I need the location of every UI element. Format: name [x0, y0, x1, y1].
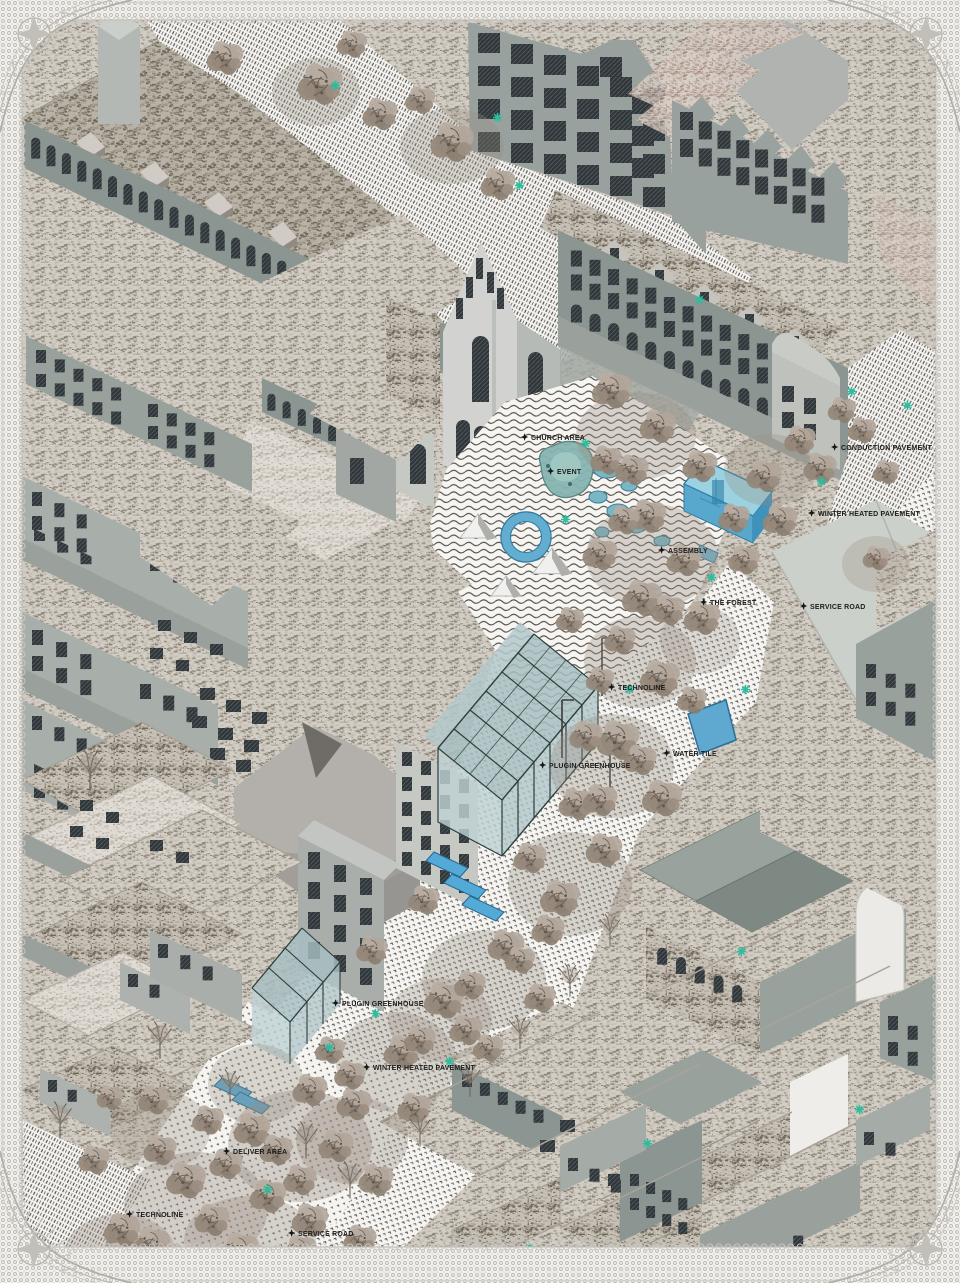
- svg-text:TECHNOLINE: TECHNOLINE: [618, 685, 666, 692]
- svg-text:WINTER HEATED PAVEMENT: WINTER HEATED PAVEMENT: [818, 511, 921, 518]
- svg-text:CHURCH AREA: CHURCH AREA: [531, 435, 585, 442]
- svg-text:ASSEMBLY: ASSEMBLY: [668, 548, 708, 555]
- svg-text:EVENT: EVENT: [557, 469, 582, 476]
- svg-text:THE FOREST: THE FOREST: [710, 600, 757, 607]
- svg-text:PLUGIN GREENHOUSE: PLUGIN GREENHOUSE: [342, 1001, 424, 1008]
- svg-text:WINTER HEATED PAVEMENT: WINTER HEATED PAVEMENT: [373, 1065, 476, 1072]
- svg-text:SERVICE ROAD: SERVICE ROAD: [298, 1231, 354, 1238]
- svg-text:WATER TILE: WATER TILE: [673, 751, 717, 758]
- svg-text:SERVICE ROAD: SERVICE ROAD: [810, 604, 866, 611]
- svg-text:PLUGIN GREENHOUSE: PLUGIN GREENHOUSE: [549, 763, 631, 770]
- svg-text:CONDUCTION PAVEMENT: CONDUCTION PAVEMENT: [841, 445, 933, 452]
- svg-text:TECHNOLINE: TECHNOLINE: [136, 1212, 184, 1219]
- svg-text:DELIVER AREA: DELIVER AREA: [233, 1149, 287, 1156]
